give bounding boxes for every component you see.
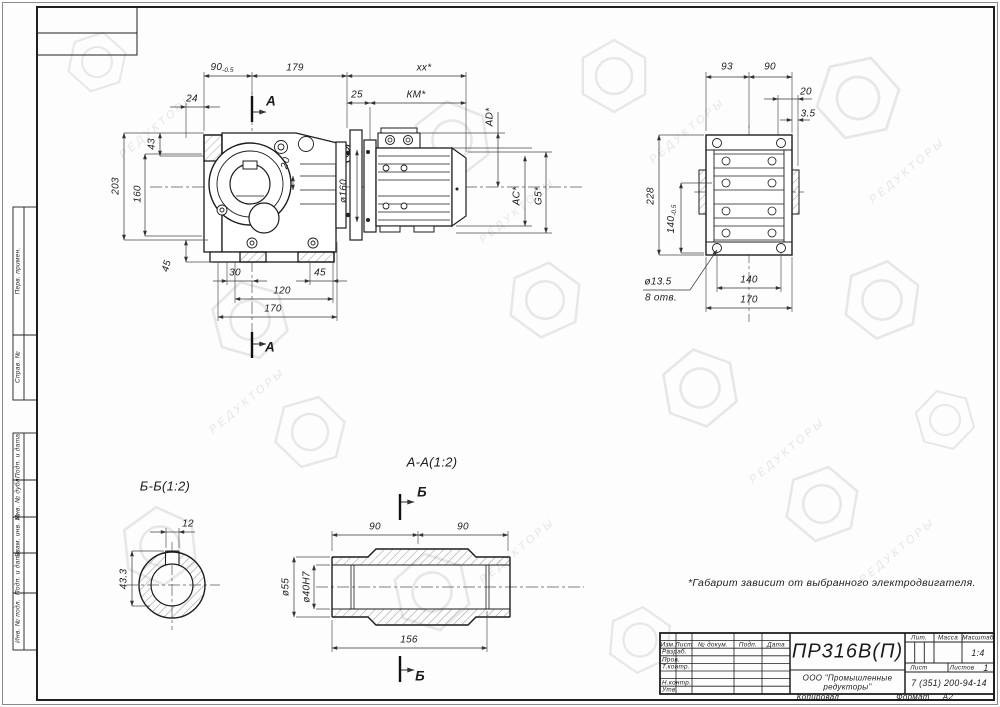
- dim-motor-km: КМ*: [406, 90, 425, 101]
- tb-part-number: ПР316В(П): [792, 641, 903, 664]
- dim-rear-228: 228: [646, 187, 657, 205]
- dim-height-45: 45: [160, 259, 174, 273]
- dim-aa-156: 156: [400, 635, 418, 646]
- dim-height-203: 203: [111, 177, 122, 195]
- dim-motor-g5: G5*: [534, 187, 545, 205]
- footnote: *Габарит зависит от выбранного электродв…: [688, 577, 976, 589]
- side-label-perv-primen: Перв. примен.: [15, 247, 22, 294]
- tb-row-nkontr: Н.контр.: [662, 679, 691, 686]
- tb-sheets-value: 1: [983, 663, 988, 673]
- tb-company-line1: ООО "Промышленные: [803, 674, 893, 683]
- section-b-label-top: Б: [417, 485, 427, 500]
- tb-sheet-label: Лист: [910, 664, 927, 671]
- dim-rear-20: 20: [800, 87, 812, 98]
- tb-format-value: А2: [943, 693, 953, 702]
- section-a-label-top: А: [266, 94, 276, 109]
- tb-header-list: Лист: [675, 641, 692, 648]
- dim-bottom-45: 45: [314, 268, 326, 279]
- section-b-label-bottom: Б: [415, 669, 425, 684]
- dim-rear-140tol: 140-0.5: [666, 205, 678, 234]
- tb-company-line2: редукторы": [823, 683, 871, 692]
- dim-rear-170: 170: [740, 295, 758, 306]
- tb-scale-value: 1:4: [971, 648, 984, 658]
- dim-depth-433: 43.3: [119, 569, 130, 590]
- side-label-sprav-no: Справ. №: [15, 351, 22, 383]
- tb-sheets-label: Листов: [950, 664, 975, 671]
- dim-rear-93: 93: [721, 62, 733, 73]
- dim-key-12: 12: [182, 519, 194, 530]
- dim-holes-diameter: ø13.5: [644, 277, 671, 288]
- dim-aa-90-left: 90: [369, 522, 381, 533]
- section-a-label-bottom: А: [265, 340, 275, 355]
- dim-bottom-170: 170: [264, 304, 282, 315]
- dim-flange-d160: ø160: [339, 179, 350, 203]
- dim-rear-140: 140: [740, 275, 758, 286]
- drawing-sheet: РЕДУКТОРЫ РЕДУКТОРЫ РЕДУКТОРЫ РЕДУКТОРЫ …: [0, 0, 1000, 707]
- dim-width-xx: xx*: [417, 63, 432, 74]
- side-label-podp-data-2: Подп. и дата: [15, 551, 22, 595]
- dim-width-90: 90-0.5: [211, 62, 234, 74]
- tb-header-sign: Подп.: [739, 641, 757, 648]
- dim-shaft-20: 20: [279, 156, 293, 170]
- tb-header-doc: № докум.: [698, 641, 728, 648]
- dim-height-43: 43: [147, 138, 158, 150]
- dim-aa-d55: ø55: [281, 578, 292, 596]
- tb-mass-label: Масса: [938, 634, 958, 641]
- side-label-podp-data-1: Подп. и дата: [15, 434, 22, 478]
- dim-height-160: 160: [133, 185, 144, 203]
- dim-bottom-30: 30: [229, 268, 241, 279]
- dim-rear-35: 3.5: [801, 109, 816, 120]
- dim-rear-90: 90: [764, 62, 776, 73]
- tb-row-utv: Утв.: [662, 687, 678, 694]
- dim-width-24: 24: [186, 94, 198, 105]
- tb-row-razrab: Разраб.: [662, 649, 687, 656]
- tb-copied: Копировал: [797, 693, 840, 702]
- label-layer: 90-0.5 179 xx* 24 25 КМ* 43 203 160 45 3…: [0, 0, 1000, 707]
- dim-aa-d40: ø40H7: [302, 571, 313, 603]
- tb-row-prov: Пров.: [662, 656, 680, 663]
- tb-lit-label: Лит.: [911, 634, 927, 641]
- dim-holes-count: 8 отв.: [645, 293, 677, 304]
- tb-scale-label: Масштаб: [962, 634, 994, 641]
- dim-bottom-120: 120: [273, 286, 291, 297]
- dim-width-179: 179: [286, 63, 304, 74]
- tb-row-tkontr: Т.контр.: [662, 664, 690, 671]
- dim-motor-ad: AD*: [485, 108, 496, 127]
- tb-header-izm: Изм.: [661, 641, 676, 648]
- tb-header-date: Дата: [767, 641, 785, 648]
- side-label-inv-podl: Инв. № подл.: [15, 599, 22, 643]
- tb-format-label: Формат: [896, 693, 930, 702]
- dim-motor-ac: AC*: [512, 187, 523, 206]
- tb-phone: 7 (351) 200-94-14: [911, 678, 987, 688]
- section-bb-title: Б-Б(1:2): [140, 479, 190, 494]
- section-aa-title: А-А(1:2): [407, 455, 458, 470]
- dim-aa-90-right: 90: [457, 522, 469, 533]
- dim-motor-25: 25: [351, 90, 363, 101]
